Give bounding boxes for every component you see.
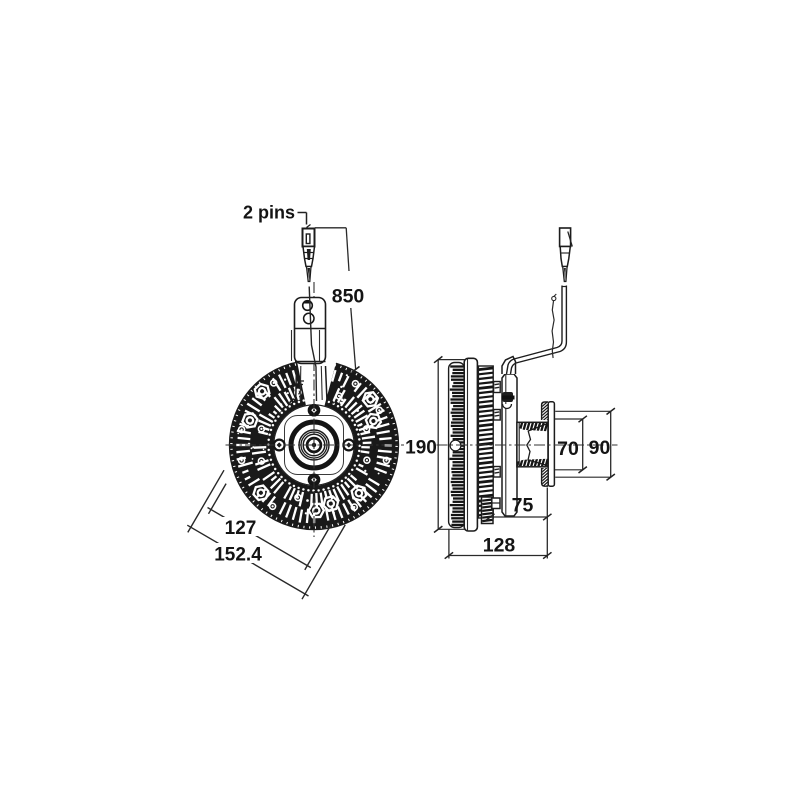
svg-text:90: 90 (589, 437, 611, 459)
svg-text:850: 850 (332, 286, 365, 308)
svg-text:127: 127 (225, 518, 257, 539)
svg-text:128: 128 (483, 535, 516, 557)
svg-text:75: 75 (512, 495, 534, 517)
svg-text:70: 70 (557, 438, 579, 460)
svg-text:190: 190 (405, 438, 437, 459)
svg-text:152.4: 152.4 (214, 545, 262, 566)
svg-text:2 pins: 2 pins (243, 203, 295, 223)
